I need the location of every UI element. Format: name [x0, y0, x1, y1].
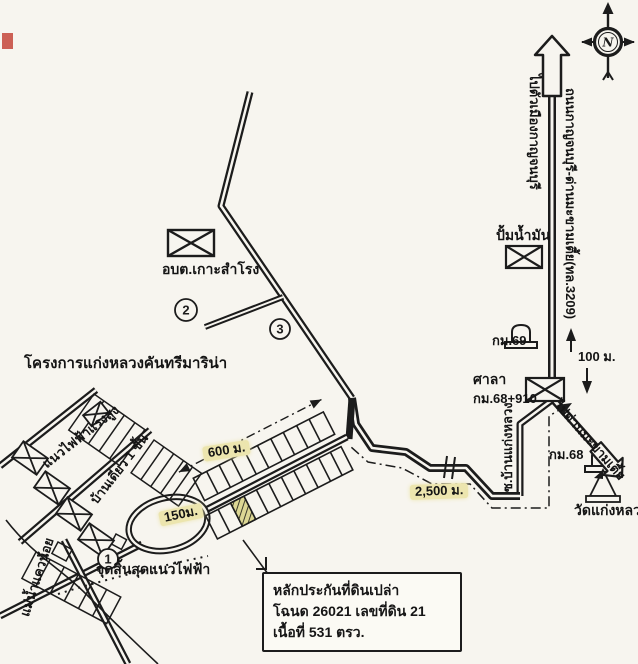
soi-name-label: ซ.บ้านแก่งหลวง — [501, 402, 515, 492]
distance-100m-label: 100 ม. — [578, 350, 615, 364]
km68-label: กม.68 — [549, 448, 584, 462]
subject-plot-hatched — [231, 496, 256, 526]
obt-building-icon — [168, 230, 214, 256]
to-city-road-label: ไปตัวเมืองกาญจนบุรี — [527, 74, 541, 190]
marker-2: 2 — [182, 303, 189, 318]
marker-3: 3 — [276, 322, 283, 337]
compass-north-letter: N — [602, 36, 615, 50]
wat-label: วัดแก่งหลวง — [574, 503, 638, 518]
land-title-callout-box: หลักประกันที่ดินเปล่า โฉนด 26021 เลขที่ด… — [262, 572, 462, 652]
km69-label: กม.69 — [492, 334, 527, 348]
gas-station-label: ปั้มน้ำมัน — [496, 228, 550, 243]
highway-name-label: ถนนกาญจนบุรี-ด่านมะขามเตี้ย(ทล.3209) — [563, 88, 577, 319]
callout-line-1: หลักประกันที่ดินเปล่า — [273, 580, 451, 601]
project-name-label: โครงการแก่งหลวงคันทรีมาริน่า — [24, 356, 227, 373]
gas-station-icon — [506, 246, 542, 268]
distance-2500m-label: 2,500 ม. — [410, 483, 469, 500]
compass-rose-icon: N — [581, 2, 635, 80]
obt-label: อบต.เกาะสำโรง — [162, 262, 259, 277]
callout-line-2: โฉนด 26021 เลขที่ดิน 21 — [273, 601, 451, 622]
power-end-label: จุดสิ้นสุดแนวไฟฟ้า — [96, 562, 210, 577]
callout-line-3: เนื้อที่ 531 ตรว. — [273, 622, 451, 643]
scan-artifact-red-mark — [2, 33, 13, 49]
subdivision-strip — [177, 395, 357, 540]
hand-drawn-location-map: N 2 3 1 โครงการแก่งหลวงคันทรีมาริน่า อบต… — [0, 0, 638, 664]
sala-label: ศาลา — [473, 372, 506, 387]
